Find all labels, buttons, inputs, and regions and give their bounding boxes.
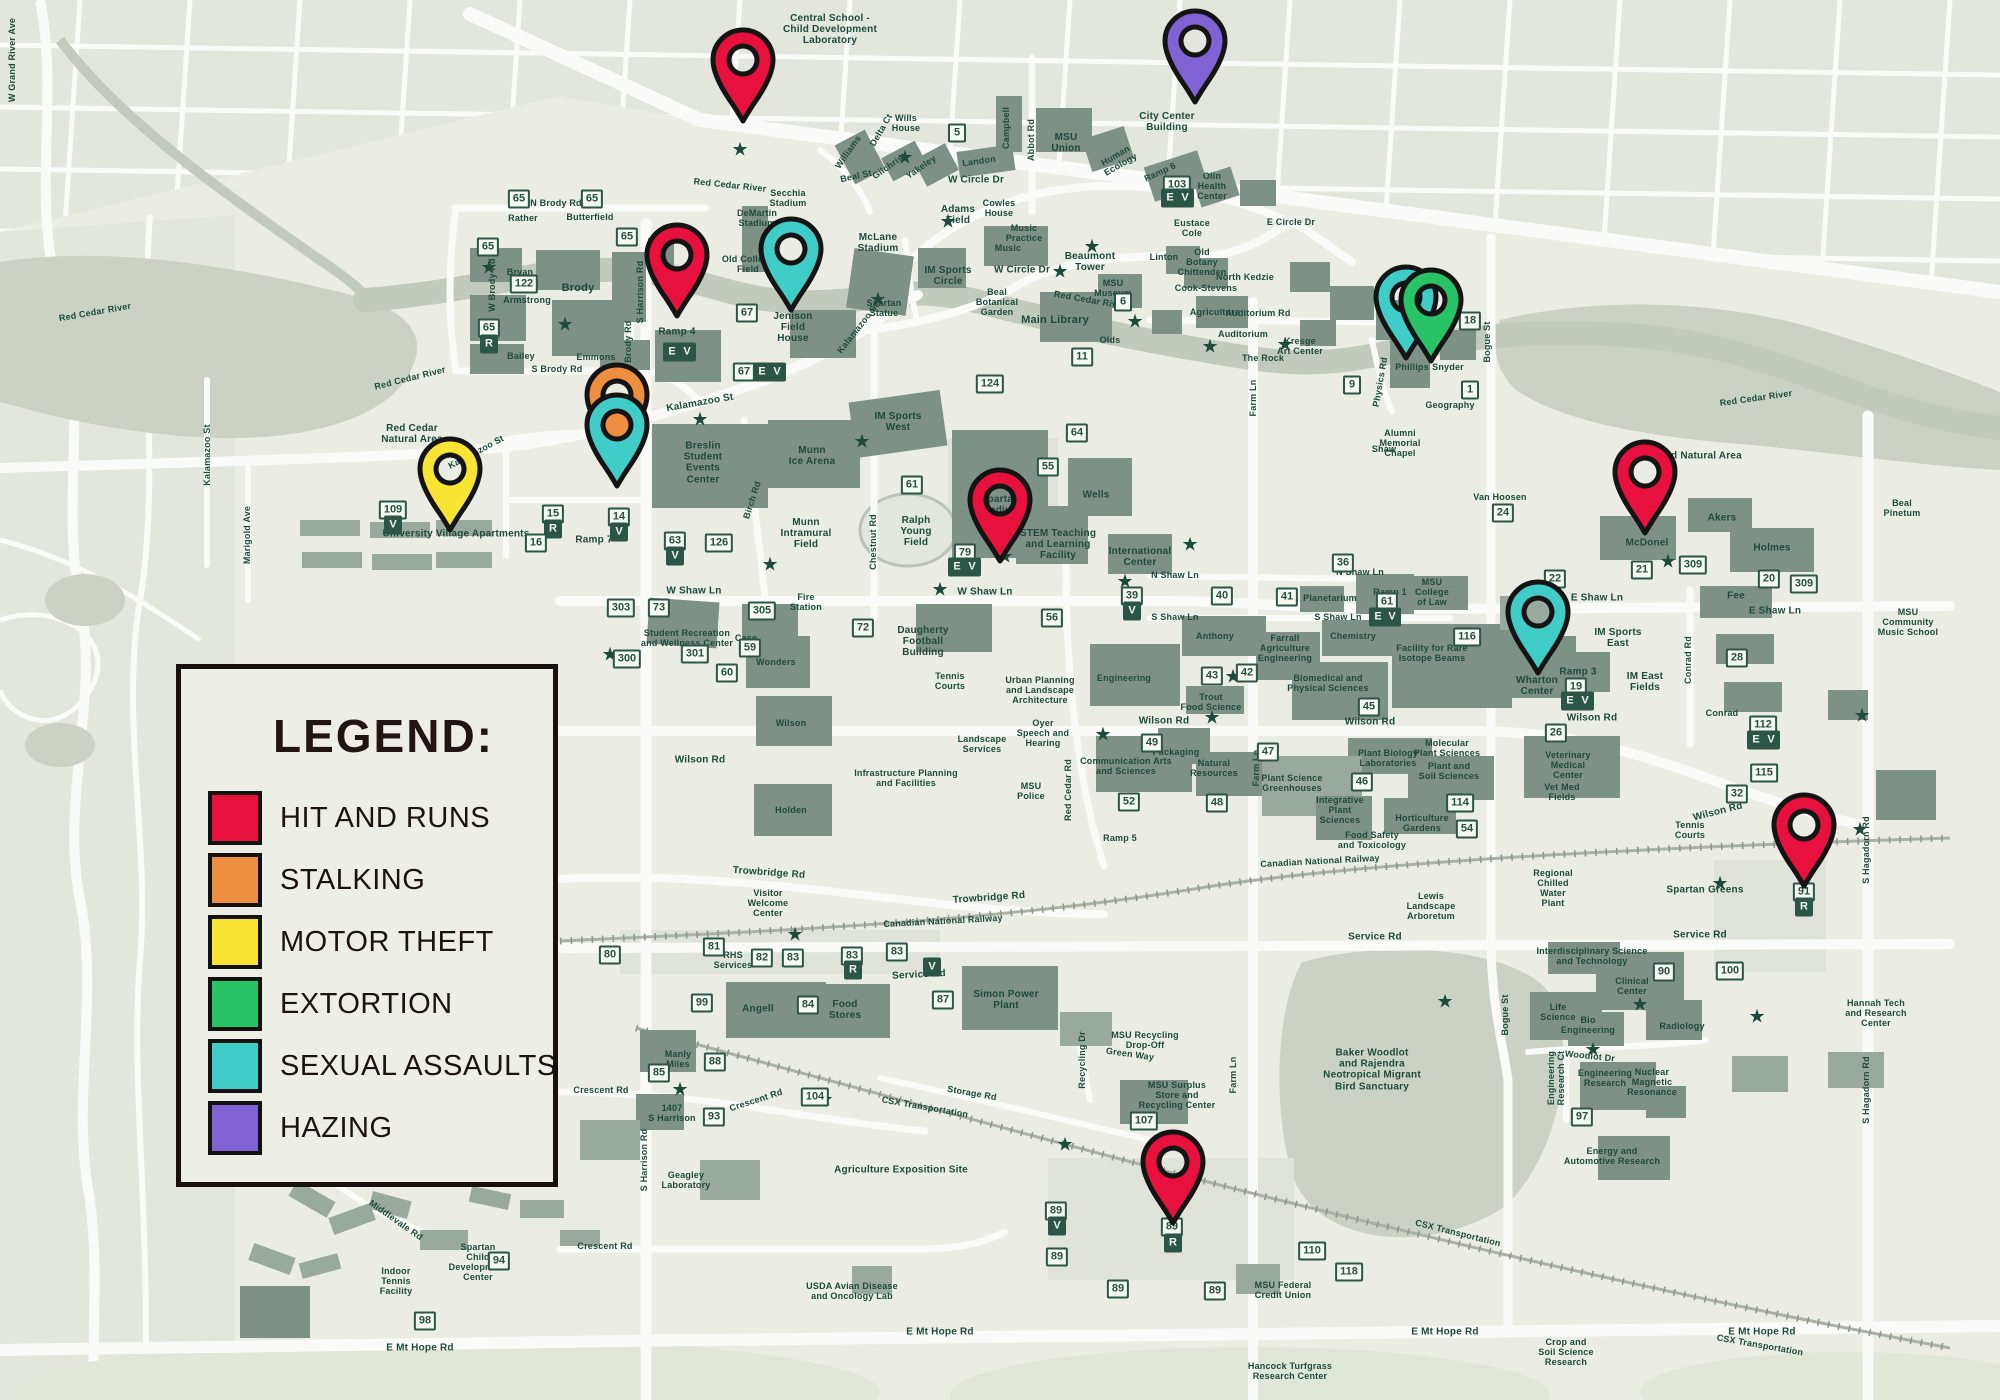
map-label: Campbell: [1001, 107, 1011, 149]
landmark-star-icon: ★: [1631, 996, 1648, 1015]
lot-number-badge: 114: [1446, 794, 1474, 813]
lot-number-badge: 305: [748, 602, 776, 621]
lot-letter-badge: V: [768, 363, 786, 382]
lot-number-badge: 6: [1114, 293, 1132, 312]
lot-number-badge: 82: [751, 949, 773, 968]
landmark-star-icon: ★: [1853, 707, 1870, 726]
map-pin-hazing-icon[interactable]: [1162, 8, 1228, 106]
map-label: Fire Station: [790, 592, 822, 612]
lot-letter-badge: V: [1176, 189, 1194, 208]
map-label: Jenison Field House: [773, 311, 812, 345]
lot-number-badge: 72: [852, 619, 874, 638]
map-label: International Center: [1109, 546, 1172, 568]
map-label: Bio Engineering: [1561, 1015, 1615, 1035]
lot-letter-badge: R: [480, 335, 498, 354]
landmark-star-icon: ★: [1094, 726, 1111, 745]
map-label: Holmes: [1753, 542, 1790, 553]
lot-number-badge: 124: [976, 375, 1004, 394]
map-pin-extortion-icon[interactable]: [1398, 267, 1464, 365]
lot-number-badge: 73: [648, 599, 670, 618]
landmark-star-icon: ★: [786, 926, 803, 945]
map-label: S Harrison Rd: [639, 1129, 649, 1192]
legend-label: MOTOR THEFT: [280, 926, 494, 959]
lot-number-badge: 83: [782, 949, 804, 968]
map-label: Beaumont Tower: [1065, 251, 1116, 273]
lot-number-badge: 309: [1790, 575, 1818, 594]
landmark-star-icon: ★: [671, 1081, 688, 1100]
landmark-star-icon: ★: [1748, 1008, 1765, 1027]
legend-items: HIT AND RUNSSTALKINGMOTOR THEFTEXTORTION…: [181, 787, 553, 1159]
lot-number-badge: 87: [932, 991, 954, 1010]
map-label: W Circle Dr: [994, 264, 1050, 275]
map-label: Plant Science Greenhouses: [1261, 773, 1322, 793]
map-label: Cowles House: [983, 198, 1016, 218]
map-label: S Shaw Ln: [1151, 612, 1198, 622]
map-label: Spartan Greens: [1666, 884, 1743, 895]
legend-swatch-sexual-assault: [208, 1039, 262, 1093]
map-label: S Brody Rd: [531, 364, 582, 374]
map-label: E Shaw Ln: [1571, 592, 1623, 603]
map-label: E Mt Hope Rd: [1411, 1326, 1478, 1337]
map-label: E Mt Hope Rd: [386, 1342, 453, 1353]
map-label: S Hagadorn Rd: [1861, 1056, 1871, 1124]
map-label: Chestnut Rd: [868, 514, 878, 570]
map-label: Central School - Child Development Labor…: [783, 13, 877, 47]
lot-number-badge: 122: [510, 275, 538, 294]
legend-swatch-hazing: [208, 1101, 262, 1155]
landmark-star-icon: ★: [931, 581, 948, 600]
lot-number-badge: 98: [414, 1312, 436, 1331]
map-label: E Circle Dr: [1267, 217, 1315, 227]
map-label: Radiology: [1659, 1021, 1704, 1031]
legend-label: SEXUAL ASSAULTS: [280, 1050, 557, 1083]
map-pin-sexual-assault-icon[interactable]: [1505, 579, 1571, 677]
lot-number-badge: 309: [1679, 556, 1707, 575]
legend-label: HIT AND RUNS: [280, 802, 490, 835]
legend-panel: LEGEND: HIT AND RUNSSTALKINGMOTOR THEFTE…: [176, 664, 558, 1187]
lot-letter-badge: V: [923, 958, 941, 977]
map-label: Bailey: [507, 351, 535, 361]
map-label: Infrastructure Planning and Facilities: [854, 768, 958, 788]
lot-number-badge: 24: [1492, 504, 1514, 523]
map-label: Auditorium: [1218, 329, 1268, 339]
legend-item-motor-theft: MOTOR THEFT: [181, 911, 553, 973]
lot-number-badge: 84: [797, 996, 819, 1015]
map-label: Farrall Agriculture Engineering: [1258, 633, 1312, 663]
map-label: Conrad: [1706, 708, 1739, 718]
map-label: Angell: [742, 1003, 774, 1014]
lot-number-badge: 64: [1066, 424, 1088, 443]
legend-label: HAZING: [280, 1112, 393, 1145]
map-label: Main Library: [1021, 314, 1089, 326]
legend-label: STALKING: [280, 864, 425, 897]
lot-number-badge: 107: [1130, 1112, 1158, 1131]
map-pin-hit-and-run-icon[interactable]: [710, 27, 776, 125]
map-label: Music Practice: [1006, 223, 1043, 243]
map-label: Rather: [508, 213, 538, 223]
map-label: Daugherty Football Building: [897, 625, 948, 659]
map-label: Veterinary Medical Center: [1545, 750, 1591, 780]
map-label: Beal Botanical Garden: [976, 287, 1018, 317]
landmark-star-icon: ★: [1436, 993, 1453, 1012]
map-label: Recycling Dr: [1077, 1031, 1087, 1088]
lot-number-badge: 52: [1118, 793, 1140, 812]
map-label: Wells: [1083, 489, 1110, 500]
map-label: Conrad Rd: [1683, 636, 1693, 684]
map-label: Secchia Stadium: [770, 188, 807, 208]
map-label: Eustace Cole: [1174, 218, 1210, 238]
map-label: MSU Community Music School: [1878, 607, 1938, 637]
legend-item-hit-and-run: HIT AND RUNS: [181, 787, 553, 849]
map-label: Tennis Courts: [1675, 820, 1705, 840]
lot-letter-badge: V: [1123, 602, 1141, 621]
map-label: Olin Health Center: [1197, 171, 1227, 201]
landmark-star-icon: ★: [1659, 553, 1676, 572]
lot-number-badge: 115: [1750, 764, 1778, 783]
lot-letter-badge: R: [1164, 1234, 1182, 1253]
landmark-star-icon: ★: [1201, 338, 1218, 357]
map-label: Crescent Rd: [577, 1241, 632, 1251]
lot-number-badge: 54: [1456, 820, 1478, 839]
map-label: Service Rd: [1673, 929, 1727, 940]
map-label: Vet Med Fields: [1544, 782, 1579, 802]
lot-number-badge: 5: [948, 124, 966, 143]
map-label: McLane Stadium: [858, 232, 899, 254]
map-label: 1407 S Harrison: [648, 1103, 696, 1123]
lot-number-badge: 16: [525, 534, 547, 553]
lot-number-badge: 47: [1257, 743, 1279, 762]
map-label: MSU College of Law: [1415, 577, 1449, 607]
map-label: Butterfield: [566, 212, 613, 222]
map-label: Music: [995, 243, 1022, 253]
map-label: Ramp 5: [1103, 833, 1137, 843]
lot-number-badge: 49: [1141, 734, 1163, 753]
legend-swatch-motor-theft: [208, 915, 262, 969]
legend-item-stalking: STALKING: [181, 849, 553, 911]
map-label: IM East Fields: [1627, 671, 1663, 693]
lot-number-badge: 67: [733, 363, 755, 382]
map-label: Kalamazoo St: [202, 424, 212, 485]
lot-number-badge: 93: [703, 1108, 725, 1127]
lot-number-badge: 81: [703, 938, 725, 957]
map-label: Interdisciplinary Science and Technology: [1536, 946, 1647, 966]
map-label: Wharton Center: [1516, 675, 1558, 697]
map-label: Regional Chilled Water Plant: [1533, 868, 1573, 908]
map-label: Indoor Tennis Facility: [380, 1266, 413, 1296]
legend-title: LEGEND:: [273, 709, 553, 763]
map-label: Baker Woodlot and Rajendra Neotropical M…: [1323, 1048, 1421, 1093]
map-label: N Shaw Ln: [1151, 570, 1199, 580]
map-label: Shaw: [1372, 444, 1396, 454]
map-pin-sexual-assault-icon[interactable]: [758, 216, 824, 314]
legend-swatch-stalking: [208, 853, 262, 907]
map-label: MSU Union: [1051, 132, 1080, 154]
lot-letter-badge: V: [1762, 731, 1780, 750]
map-label: W Brody Rd: [487, 258, 497, 312]
lot-letter-badge: R: [1795, 898, 1813, 917]
legend-item-hazing: HAZING: [181, 1097, 553, 1159]
lot-number-badge: 65: [616, 228, 638, 247]
map-label: Biomedical and Physical Sciences: [1287, 673, 1368, 693]
map-label: Tennis Courts: [935, 671, 965, 691]
map-label: Urban Planning and Landscape Architectur…: [1005, 675, 1074, 705]
map-label: Breslin Student Events Center: [684, 441, 723, 486]
map-label: E Mt Hope Rd: [906, 1326, 973, 1337]
lot-number-badge: 85: [648, 1064, 670, 1083]
map-label: Munn Intramural Field: [781, 517, 832, 551]
landmark-star-icon: ★: [1126, 313, 1143, 332]
map-label: Emmons: [576, 352, 615, 362]
map-label: Adams Field: [941, 204, 975, 226]
map-label: Bogue St: [1482, 321, 1492, 362]
map-pin-motor-theft-icon[interactable]: [417, 436, 483, 534]
lot-number-badge: 11: [1071, 348, 1093, 367]
map-label: Food Stores: [829, 999, 861, 1021]
map-label: Hancock Turfgrass Research Center: [1248, 1361, 1332, 1381]
lot-number-badge: 21: [1631, 561, 1653, 580]
lot-number-badge: 89: [1107, 1280, 1129, 1299]
map-label: Ramp 4: [658, 326, 695, 337]
map-label: Wilson Rd: [675, 754, 726, 765]
map-label: N Brody Rd: [530, 198, 582, 208]
map-label: Clinical Center: [1615, 976, 1649, 996]
map-label: IM Sports East: [1594, 627, 1641, 649]
map-label: Planetarium: [1303, 593, 1357, 603]
map-pin-hit-and-run-icon[interactable]: [1140, 1129, 1206, 1227]
lot-number-badge: 116: [1453, 628, 1481, 647]
map-label: MSU Police: [1017, 781, 1045, 801]
map-label: North Kedzie: [1216, 272, 1274, 282]
lot-number-badge: 9: [1343, 376, 1361, 395]
map-label: Visitor Welcome Center: [748, 888, 789, 918]
map-label: Energy and Automotive Research: [1564, 1146, 1660, 1166]
map-label: Brody: [562, 282, 595, 294]
lot-number-badge: 88: [704, 1053, 726, 1072]
lot-number-badge: 67: [736, 304, 758, 323]
map-label: MSU Surplus Store and Recycling Center: [1139, 1080, 1216, 1110]
map-label: Simon Power Plant: [973, 989, 1039, 1011]
map-label: Ramp 7: [575, 534, 612, 545]
map-label: Munn Ice Arena: [789, 445, 835, 467]
map-label: Engineering: [1097, 673, 1151, 683]
map-label: Armstrong: [503, 295, 551, 305]
lot-number-badge: 36: [1332, 554, 1354, 573]
map-label: Oyer Speech and Hearing: [1017, 718, 1070, 748]
map-label: City Center Building: [1139, 111, 1195, 133]
lot-number-badge: 104: [801, 1088, 829, 1107]
legend-swatch-extortion: [208, 977, 262, 1031]
landmark-star-icon: ★: [853, 433, 870, 452]
map-pin-hit-and-run-icon[interactable]: [1612, 439, 1678, 537]
map-label: Food Safety and Toxicology: [1338, 830, 1406, 850]
map-label: Wills House: [892, 113, 921, 133]
map-label: E Shaw Ln: [1749, 605, 1801, 616]
map-pin-hit-and-run-icon[interactable]: [644, 222, 710, 320]
map-label: Geagley Laboratory: [661, 1170, 710, 1190]
lot-number-badge: 65: [508, 190, 530, 209]
lot-number-badge: 41: [1276, 588, 1298, 607]
map-label: USDA Avian Disease and Oncology Lab: [806, 1281, 898, 1301]
map-label: MSU Federal Credit Union: [1255, 1280, 1312, 1300]
map-label: Trout Food Science: [1181, 692, 1242, 712]
map-label: Chemistry: [1330, 631, 1376, 641]
map-label: Anthony: [1196, 631, 1234, 641]
map-label: Geography: [1425, 400, 1474, 410]
map-label: Landscape Services: [958, 734, 1007, 754]
map-label: Communication Arts and Sciences: [1080, 756, 1172, 776]
map-pin-sexual-assault-icon[interactable]: [584, 392, 650, 490]
map-label: Olds: [1100, 335, 1121, 345]
map-label: Farm Ln: [1248, 380, 1258, 417]
lot-number-badge: 1: [1461, 381, 1479, 400]
map-label: Ralph Young Field: [900, 515, 931, 549]
legend-item-sexual-assault: SEXUAL ASSAULTS: [181, 1035, 553, 1097]
campus-crime-map: LEGEND: HIT AND RUNSSTALKINGMOTOR THEFTE…: [0, 0, 2000, 1400]
lot-number-badge: 26: [1545, 724, 1567, 743]
lot-number-badge: 32: [1726, 785, 1748, 804]
lot-number-badge: 110: [1298, 1242, 1326, 1261]
lot-letter-badge: V: [1383, 608, 1401, 627]
map-label: Wilson: [776, 718, 807, 728]
map-label: IM Sports West: [874, 411, 921, 433]
map-label: Linton: [1150, 252, 1179, 262]
map-label: Cook-Stevens: [1175, 283, 1237, 293]
map-label: Van Hoosen: [1473, 492, 1527, 502]
landmark-star-icon: ★: [761, 556, 778, 575]
map-label: Holden: [775, 805, 807, 815]
map-label: W Shaw Ln: [666, 585, 721, 596]
lot-number-badge: 100: [1716, 962, 1744, 981]
landmark-star-icon: ★: [1056, 1136, 1073, 1155]
map-pin-hit-and-run-icon[interactable]: [967, 467, 1033, 565]
map-label: Akers: [1708, 512, 1737, 523]
map-label: S Shaw Ln: [1314, 612, 1361, 622]
map-label: McDonel: [1625, 537, 1668, 548]
map-label: Wilson Rd: [1345, 716, 1396, 727]
map-label: Crop and Soil Science Research: [1538, 1337, 1593, 1367]
lot-number-badge: 301: [681, 645, 709, 664]
landmark-star-icon: ★: [731, 141, 748, 160]
legend-label: EXTORTION: [280, 988, 453, 1021]
map-label: Bogue St: [1500, 994, 1510, 1035]
lot-number-badge: 90: [1653, 963, 1675, 982]
map-label: Plant Biology Laboratories: [1358, 748, 1418, 768]
lot-number-badge: 42: [1236, 664, 1258, 683]
map-label: Farm Ln: [1228, 1057, 1238, 1094]
lot-number-badge: 56: [1041, 609, 1063, 628]
legend-item-extortion: EXTORTION: [181, 973, 553, 1035]
lot-number-badge: 65: [581, 190, 603, 209]
lot-letter-badge: V: [1048, 1217, 1066, 1236]
lot-number-badge: 55: [1037, 458, 1059, 477]
lot-number-badge: 60: [716, 664, 738, 683]
map-label: Wilson Rd: [1139, 715, 1190, 726]
map-label: Abbot Rd: [1026, 119, 1036, 161]
map-label: Fee: [1727, 590, 1745, 601]
map-label: Wonders: [756, 657, 796, 667]
landmark-star-icon: ★: [556, 316, 573, 335]
lot-number-badge: 300: [613, 650, 641, 669]
map-pin-hit-and-run-icon[interactable]: [1771, 792, 1837, 890]
lot-number-badge: 97: [1571, 1108, 1593, 1127]
lot-letter-badge: V: [678, 343, 696, 362]
landmark-star-icon: ★: [691, 411, 708, 430]
map-label: W Circle Dr: [948, 174, 1004, 185]
lot-number-badge: 126: [705, 534, 733, 553]
lot-number-badge: 28: [1726, 649, 1748, 668]
map-label: Wilson Rd: [1567, 712, 1618, 723]
map-label: W Shaw Ln: [957, 586, 1012, 597]
map-label: Nuclear Magnetic Resonance: [1627, 1067, 1677, 1097]
lot-number-badge: 59: [739, 639, 761, 658]
lot-letter-badge: V: [384, 516, 402, 535]
lot-number-badge: 83: [886, 943, 908, 962]
lot-number-badge: 40: [1211, 587, 1233, 606]
map-label: Auditorium Rd: [1225, 308, 1290, 318]
map-label: Natural Resources: [1190, 758, 1238, 778]
map-label: S Hagadorn Rd: [1861, 816, 1871, 884]
lot-number-badge: 80: [599, 946, 621, 965]
lot-number-badge: 45: [1358, 698, 1380, 717]
map-label: Molecular Plant Sciences: [1414, 738, 1480, 758]
map-label: Lewis Landscape Arboretum: [1407, 891, 1456, 921]
lot-number-badge: 99: [691, 994, 713, 1013]
map-label: W Grand River Ave: [7, 18, 17, 102]
legend-swatch-hit-and-run: [208, 791, 262, 845]
lot-number-badge: 61: [901, 476, 923, 495]
lot-letter-badge: V: [666, 547, 684, 566]
lot-number-badge: 94: [488, 1252, 510, 1271]
map-label: Plant and Soil Sciences: [1419, 761, 1480, 781]
map-label: E Mt Hope Rd: [1728, 1326, 1795, 1337]
map-label: Beal Pinetum: [1884, 498, 1921, 518]
lot-letter-badge: V: [1576, 692, 1594, 711]
lot-letter-badge: V: [610, 523, 628, 542]
lot-number-badge: 20: [1758, 570, 1780, 589]
map-label: Service Rd: [1348, 931, 1402, 942]
lot-number-badge: 65: [477, 238, 499, 257]
lot-number-badge: 303: [607, 599, 635, 618]
lot-number-badge: 89: [1046, 1248, 1068, 1267]
map-label: Engineering Research Ct: [1546, 1051, 1566, 1106]
lot-number-badge: 48: [1206, 794, 1228, 813]
map-label: IM Sports Circle: [924, 265, 971, 287]
lot-number-badge: 89: [1204, 1282, 1226, 1301]
lot-number-badge: 43: [1201, 667, 1223, 686]
map-label: Marigold Ave: [242, 506, 252, 564]
map-label: Crescent Rd: [573, 1085, 628, 1095]
map-label: Engineering Research: [1578, 1068, 1632, 1088]
map-label: Integrative Plant Sciences: [1316, 795, 1364, 825]
lot-number-badge: 46: [1351, 773, 1373, 792]
map-label: Agriculture Exposition Site: [834, 1164, 968, 1175]
landmark-star-icon: ★: [1181, 536, 1198, 555]
map-label: Red Cedar Rd: [1063, 759, 1073, 821]
map-label: Hannah Tech and Research Center: [1845, 998, 1906, 1028]
lot-number-badge: 118: [1335, 1263, 1363, 1282]
lot-letter-badge: R: [844, 961, 862, 980]
map-label: The Rock: [1242, 353, 1284, 363]
